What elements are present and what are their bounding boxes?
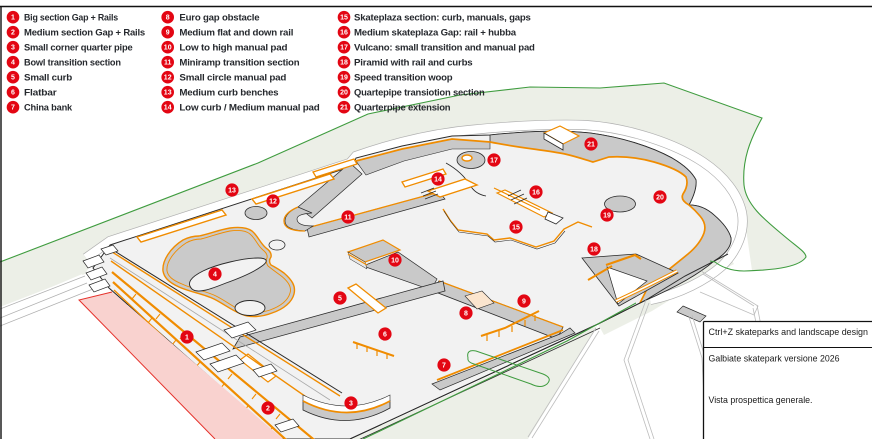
svg-text:17: 17 [340,45,348,52]
svg-text:9: 9 [522,299,526,306]
svg-text:21: 21 [587,142,595,149]
svg-text:19: 19 [340,75,348,82]
svg-text:19: 19 [603,213,611,220]
svg-text:18: 18 [340,60,348,67]
svg-text:Big section Gap + Rails: Big section Gap + Rails [24,13,118,24]
svg-text:Piramid with rail and curbs: Piramid with rail and curbs [354,58,473,69]
svg-text:4: 4 [11,60,15,67]
svg-text:11: 11 [344,215,352,222]
svg-text:1: 1 [185,335,189,342]
svg-text:Skateplaza section: curb, manu: Skateplaza section: curb, manuals, gaps [354,13,531,24]
svg-text:Small curb: Small curb [24,73,72,84]
svg-text:1: 1 [11,15,15,22]
svg-text:3: 3 [349,401,353,408]
svg-text:15: 15 [512,225,520,232]
svg-text:16: 16 [532,190,540,197]
svg-text:20: 20 [340,90,348,97]
svg-text:14: 14 [164,105,172,112]
svg-text:7: 7 [11,105,15,112]
svg-text:12: 12 [269,199,277,206]
svg-text:Bowl transition section: Bowl transition section [24,58,121,69]
svg-text:Ctrl+Z skateparks and landscap: Ctrl+Z skateparks and landscape design [709,327,869,337]
svg-text:Vista prospettica generale.: Vista prospettica generale. [709,395,813,405]
svg-text:4: 4 [213,272,217,279]
svg-text:3: 3 [11,45,15,52]
svg-text:2: 2 [11,30,15,37]
svg-text:10: 10 [164,45,172,52]
svg-text:14: 14 [434,177,442,184]
svg-text:10: 10 [391,258,399,265]
svg-text:13: 13 [164,90,172,97]
svg-text:5: 5 [11,75,15,82]
svg-text:11: 11 [164,60,172,67]
svg-text:15: 15 [340,15,348,22]
svg-text:Medium skateplaza Gap: rail +: Medium skateplaza Gap: rail + hubba [354,28,517,39]
svg-text:Low to high manual pad: Low to high manual pad [179,43,287,54]
svg-text:Small corner quarter pipe: Small corner quarter pipe [24,43,133,54]
svg-text:Low curb / Medium manual pad: Low curb / Medium manual pad [179,103,320,114]
svg-text:Quarterpipe extension: Quarterpipe extension [354,103,451,114]
svg-text:Medium flat and down rail: Medium flat and down rail [179,28,293,39]
svg-text:8: 8 [166,15,170,22]
svg-text:5: 5 [338,296,342,303]
svg-text:2: 2 [266,406,270,413]
svg-text:Medium curb benches: Medium curb benches [179,88,278,99]
svg-text:16: 16 [340,30,348,37]
svg-text:Vulcano: small transition and: Vulcano: small transition and manual pad [354,43,535,54]
svg-text:18: 18 [590,247,598,254]
svg-text:6: 6 [11,90,15,97]
svg-text:China bank: China bank [24,103,73,114]
svg-text:9: 9 [166,30,170,37]
svg-text:Small circle manual pad: Small circle manual pad [179,73,286,84]
svg-text:7: 7 [442,363,446,370]
svg-text:12: 12 [164,75,172,82]
svg-text:20: 20 [656,195,664,202]
svg-text:Medium section Gap + Rails: Medium section Gap + Rails [24,28,145,39]
svg-text:Flatbar: Flatbar [24,88,57,99]
svg-text:6: 6 [383,332,387,339]
svg-text:Galbiate skatepark versione 20: Galbiate skatepark versione 2026 [709,354,840,364]
svg-text:13: 13 [228,188,236,195]
svg-text:Miniramp transition section: Miniramp transition section [179,58,299,69]
svg-text:21: 21 [340,105,348,112]
svg-text:Euro gap obstacle: Euro gap obstacle [179,13,259,24]
svg-text:Speed transition woop: Speed transition woop [354,73,453,84]
svg-text:17: 17 [490,158,498,165]
svg-text:8: 8 [464,311,468,318]
svg-text:Quartepipe transiotion section: Quartepipe transiotion section [354,88,485,99]
